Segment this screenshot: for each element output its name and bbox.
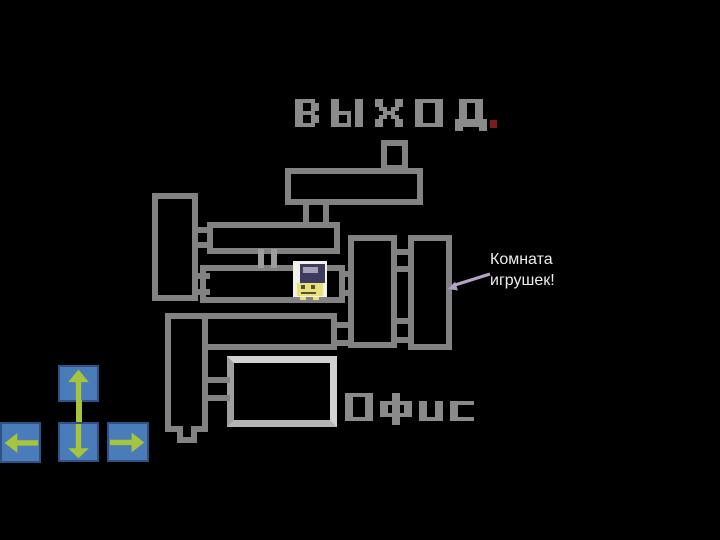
door-midupper-midlower	[258, 249, 277, 268]
sprite-foot-left	[300, 297, 306, 300]
arrow-left-icon	[2, 424, 39, 461]
left-down-arrow-icon	[444, 264, 494, 294]
nav-right-button[interactable]	[107, 422, 149, 462]
game-slide: Комната игрушек!	[0, 0, 720, 540]
sprite-mouth	[301, 292, 316, 294]
room-left-column	[165, 313, 208, 432]
arrow-right-icon	[109, 424, 147, 460]
sprite-visor	[303, 267, 318, 273]
door-hall-midupper	[303, 200, 329, 225]
room-vertical-1	[348, 235, 397, 348]
nav-left-button[interactable]	[0, 422, 41, 463]
room-exit-door	[381, 140, 408, 171]
toy-room-annotation: Комната игрушек!	[490, 249, 555, 291]
door-leftcolumn-office	[205, 377, 230, 401]
exit-sign-label	[295, 95, 499, 127]
arrow-up-icon	[60, 367, 97, 400]
annotation-line-2: игрушек!	[490, 270, 555, 291]
nav-up-button[interactable]	[58, 365, 99, 402]
door-midlower-vertical1	[339, 271, 352, 296]
nav-down-button[interactable]	[58, 422, 99, 462]
room-office	[227, 356, 337, 427]
sprite-eye-left	[301, 285, 305, 289]
annotation-line-1: Комната	[490, 249, 555, 270]
door-leftwing-midupper	[192, 227, 210, 248]
arrow-shaft-connector	[76, 400, 82, 424]
office-label	[345, 389, 481, 421]
sprite-foot-right	[313, 297, 319, 300]
red-pixel	[490, 120, 497, 128]
door-bottomhall-vertical1	[334, 322, 351, 346]
door-leftwing-midlower	[192, 273, 210, 295]
door-vertical1-toyroom-bottom	[394, 318, 411, 343]
door-vertical1-toyroom-top	[394, 249, 411, 272]
player-sprite	[293, 261, 327, 300]
door-notch	[177, 426, 197, 443]
arrow-down-icon	[60, 424, 97, 460]
sprite-eye-right	[311, 285, 315, 289]
